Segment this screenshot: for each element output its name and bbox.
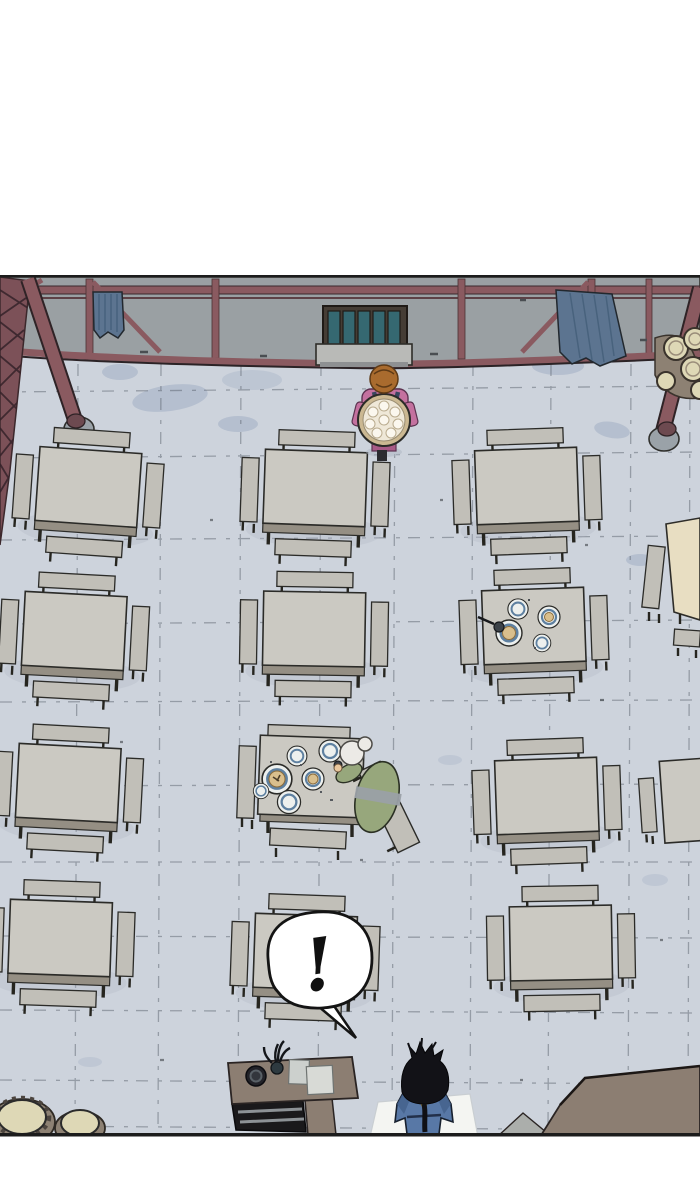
comic-panel[interactable]: ! xyxy=(0,0,700,1194)
server-hair-bun xyxy=(370,365,398,393)
storage-jars-top-right xyxy=(655,328,700,399)
panel-bottom-border xyxy=(0,1133,700,1137)
curtain-left xyxy=(93,292,124,338)
counter-tray xyxy=(306,1065,333,1094)
protagonist-ponytail xyxy=(424,1104,425,1132)
panel-top-border xyxy=(0,275,700,278)
window-sill xyxy=(316,344,412,365)
serving-tray xyxy=(358,394,410,446)
counter-hatch xyxy=(232,1101,306,1132)
webtoon-page: ! xyxy=(0,0,700,1194)
window-center xyxy=(316,306,412,367)
